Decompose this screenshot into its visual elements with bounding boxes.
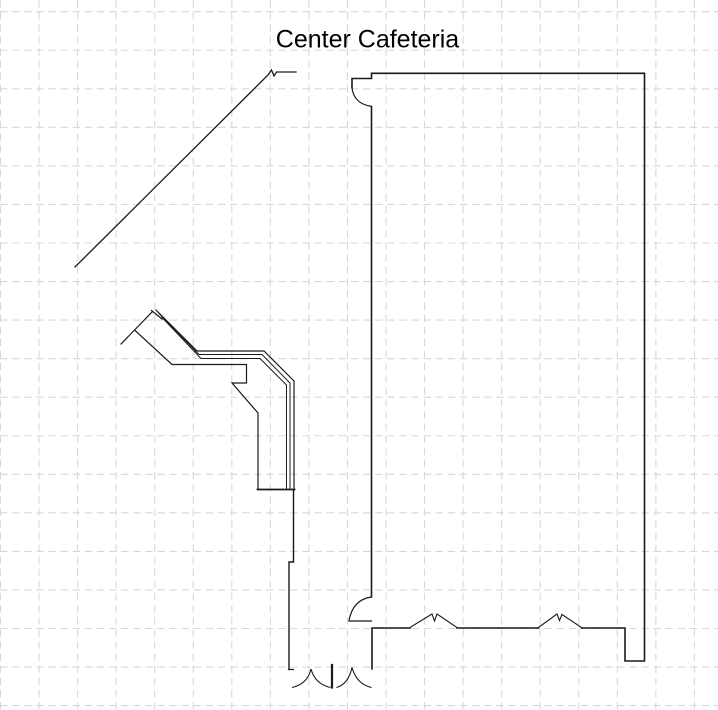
door-arc-bottom-left	[349, 597, 372, 621]
door-arc-top-left	[352, 88, 372, 107]
wall-main-room-bottom-corner	[372, 628, 410, 669]
hall-wall-diagonal	[75, 70, 296, 267]
counter-end-diagonal	[121, 312, 153, 345]
grid-layer	[0, 0, 718, 710]
door-swing-arc-2b	[352, 668, 372, 688]
door-swing-arc-1b	[311, 669, 331, 688]
drawing-layer	[75, 70, 645, 688]
wall-break-symbol-1	[410, 614, 457, 628]
vestibule-wall-left	[289, 490, 294, 669]
door-swing-arc-2a	[337, 668, 353, 688]
drawing-title: Center Cafeteria	[276, 26, 460, 54]
counter-rail-outer	[156, 310, 294, 490]
floorplan-viewport: Center Cafeteria	[0, 0, 718, 710]
counter-rail-inner	[162, 318, 287, 490]
floorplan-canvas: Center Cafeteria	[0, 0, 718, 710]
wall-main-room-top-right	[352, 73, 645, 661]
door-swing-arc-1a	[292, 669, 311, 688]
wall-break-symbol-2	[539, 614, 582, 628]
